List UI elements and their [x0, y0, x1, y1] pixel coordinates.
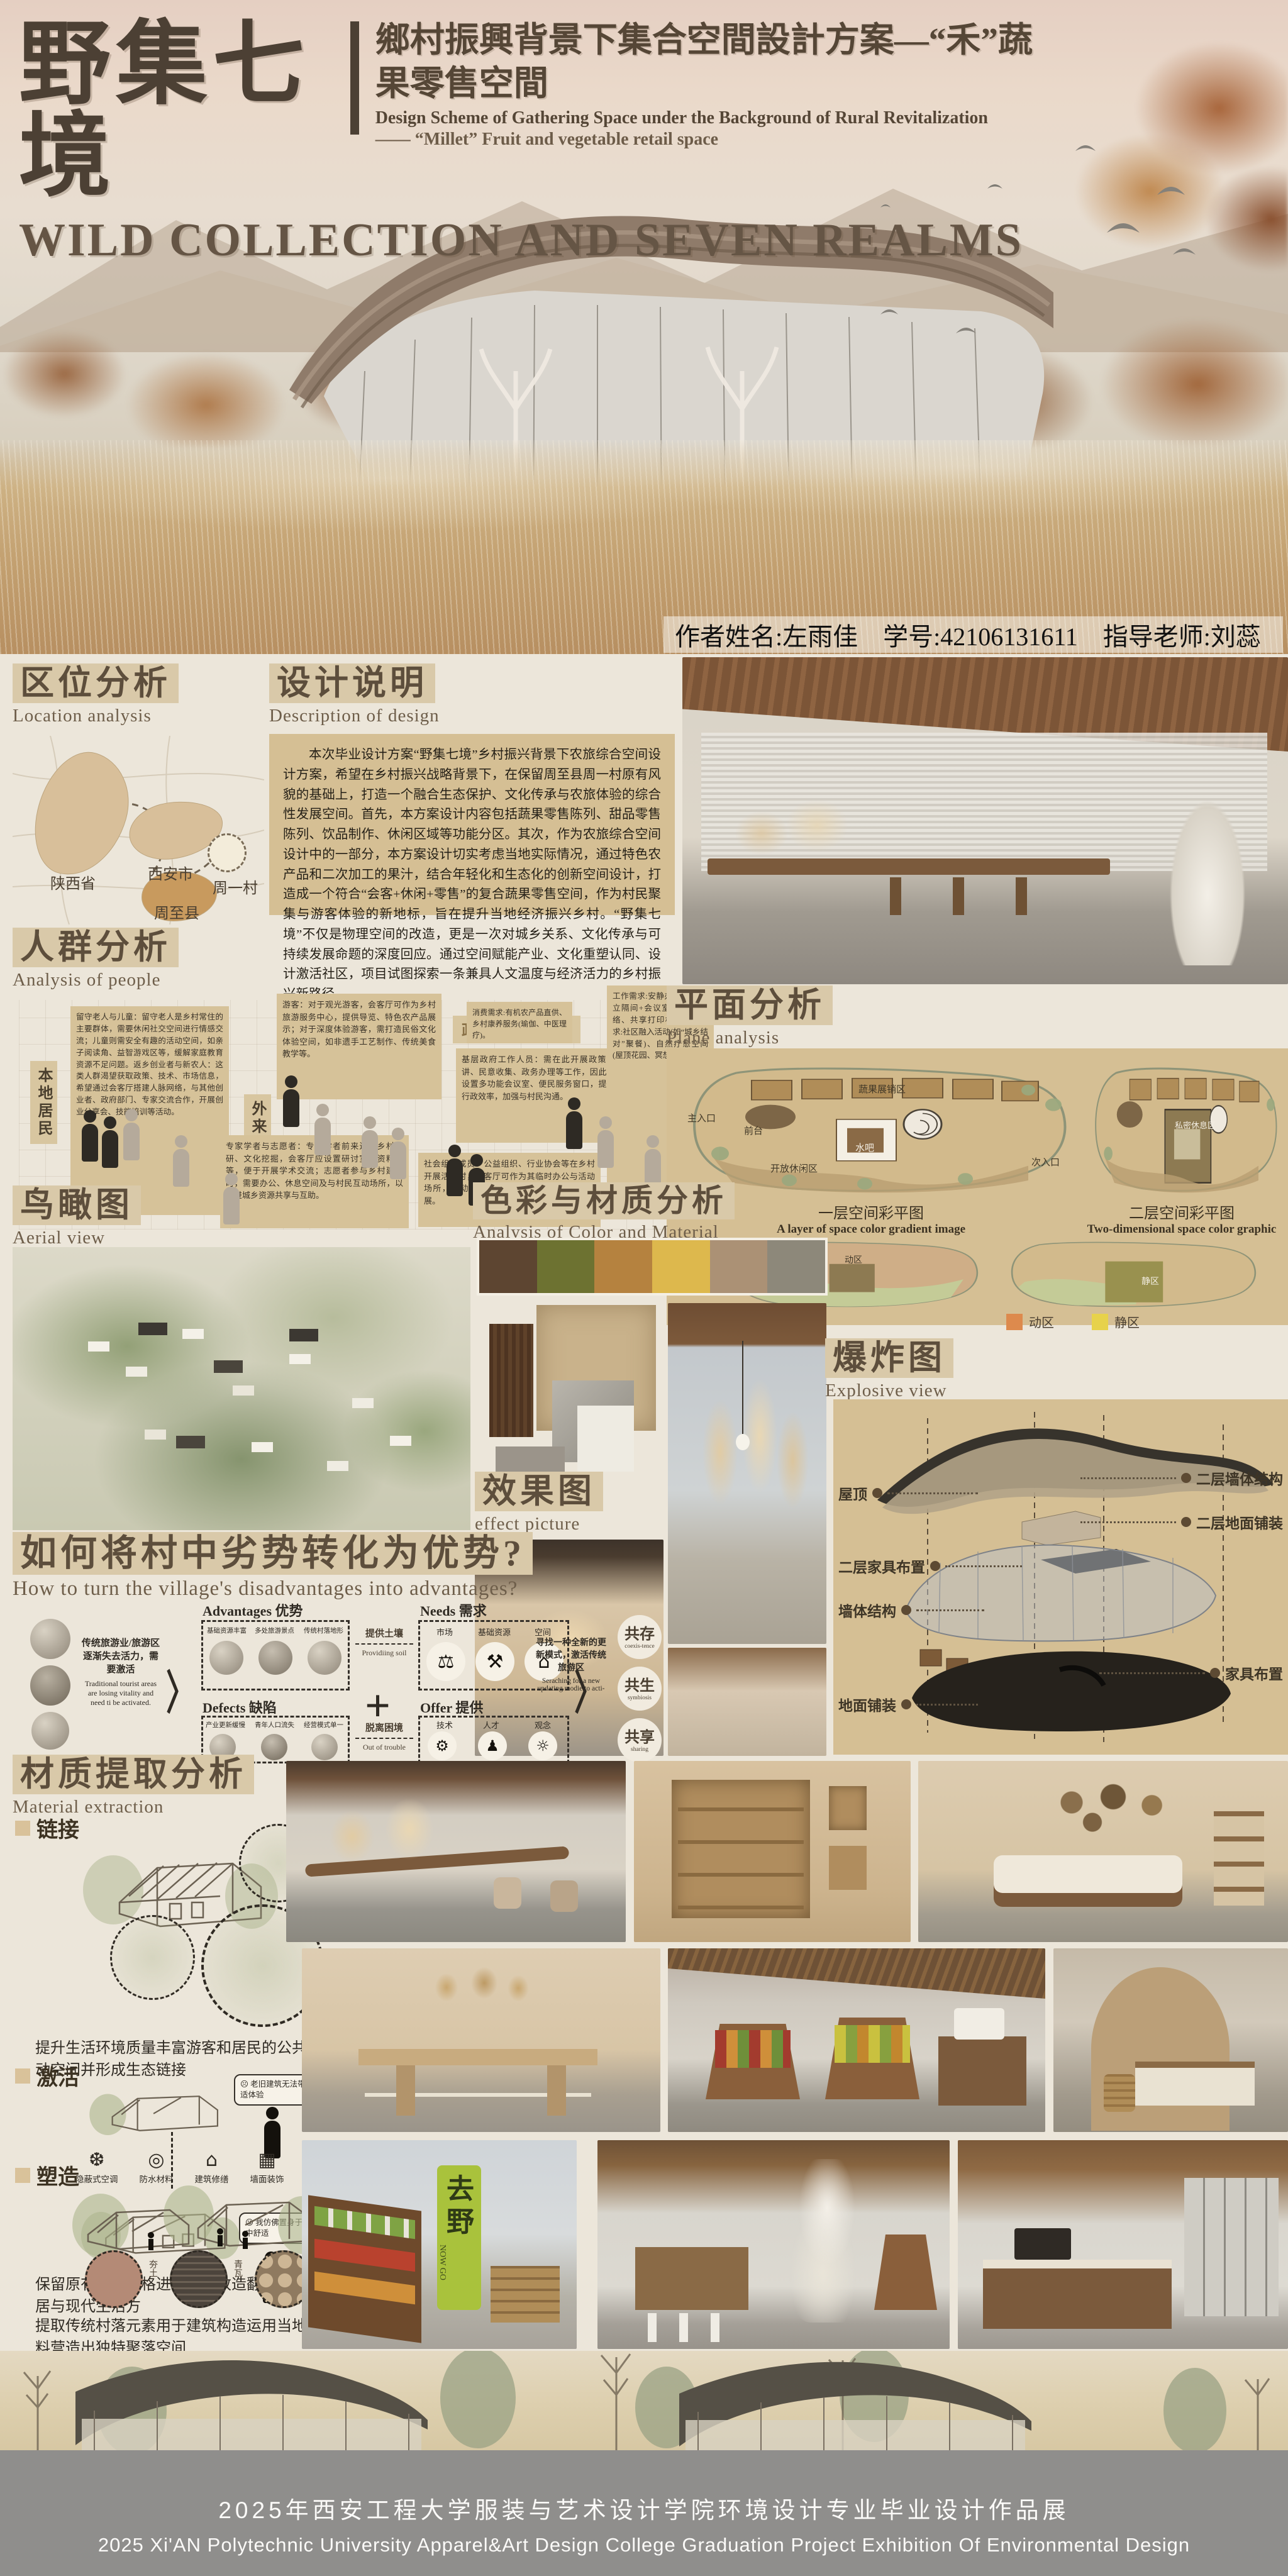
section-explosive: 爆炸图 Explosive view — [825, 1338, 1288, 1758]
pendant-light — [742, 1341, 743, 1435]
shelf-unit — [1214, 1811, 1264, 1906]
explosive-label-f2-furniture: 二层家具布置 — [838, 1555, 1027, 1577]
effect-title: 效果图 — [475, 1472, 603, 1511]
leader-line — [916, 1609, 984, 1611]
pendant-bulb — [736, 1434, 750, 1450]
plane-title: 平面分析 — [667, 985, 833, 1025]
leader-line — [1099, 1672, 1205, 1674]
needs-item-label: 市场 — [436, 1626, 453, 1638]
aerial-image — [13, 1247, 470, 1530]
author-id: 学号:42106131611 — [883, 616, 1078, 653]
arrow-providing-soil: 提供土壤 Providiing soil — [355, 1626, 413, 1658]
defects-label: Defects 缺陷 — [203, 1697, 277, 1717]
material-s1: 链接 — [15, 1813, 79, 1843]
material-s1-label: 链接 — [36, 1813, 79, 1843]
caption2-cn: 二层空间彩平图 — [1075, 1201, 1288, 1223]
person-silhouette — [566, 1097, 582, 1160]
legend-label-active: 动区 — [1029, 1313, 1054, 1331]
aerial-house — [88, 1341, 109, 1352]
author-strip: 作者姓名:左雨佳 学号:42106131611 指导老师:刘蕊 — [663, 616, 1283, 653]
stool-round — [550, 1880, 578, 1912]
adv-item: 基础资源丰富 — [207, 1626, 247, 1635]
palette-swatch — [479, 1240, 537, 1293]
hanging-lamps — [415, 1961, 541, 2005]
green-banner: 去野 NOW GO — [437, 2165, 481, 2310]
explosive-title: 爆炸图 — [825, 1338, 953, 1378]
author-name: 作者姓名:左雨佳 — [675, 616, 858, 653]
label-text: 二层家具布置 — [838, 1555, 925, 1577]
bar-stool — [648, 2313, 657, 2342]
plan1-svg — [676, 1056, 1079, 1197]
chip — [15, 1821, 30, 1836]
table-leg — [547, 2065, 566, 2116]
coffee-machine — [954, 2008, 1004, 2040]
person-silhouette — [82, 1110, 98, 1163]
talent-icon: ♟ — [478, 1731, 507, 1760]
plan4-label-quiet: 静区 — [1141, 1275, 1159, 1287]
log-sofa — [994, 1855, 1182, 1893]
footer-line2: 2025 Xi'AN Polytechnic University Appare… — [98, 2534, 1190, 2557]
label-text: 家具布置 — [1225, 1662, 1283, 1684]
location-map: 陕西省 西安市 周至县 周一村 — [13, 736, 264, 924]
hero-image: 野集七境 鄉村振興背景下集合空間設計方案—“禾”蔬果零售空間 Design Sc… — [0, 0, 1288, 654]
leader-line — [916, 1704, 978, 1706]
plan-floor2: 私密休息区 — [1087, 1056, 1283, 1197]
right-note-en: Seraching for a new updating modie to ac… — [533, 1677, 609, 1692]
market-icon: ⚖ — [426, 1642, 465, 1681]
material-s2: 激活 — [15, 2060, 79, 2091]
plan-label-front-desk: 前台 — [744, 1124, 763, 1137]
leader-line — [1080, 1521, 1176, 1523]
tile-label: 青瓦 — [231, 2260, 243, 2277]
left-note-cn: 传统旅游业/旅游区逐渐失去活力，需要激活 — [80, 1636, 161, 1675]
footer-line1: 2025年西安工程大学服装与艺术设计学院环境设计专业毕业设计作品展 — [218, 2491, 1069, 2525]
bar-counter — [635, 2247, 748, 2310]
result-coexistence: 共存 coexis-tence — [618, 1615, 662, 1659]
dot — [1210, 1668, 1220, 1678]
plan-floor1: 主入口 前台 蔬果展销区 水吧 开放休闲区 次入口 — [676, 1056, 1079, 1197]
link-circle-mid — [110, 1915, 195, 2000]
roof-slats — [668, 1948, 1045, 1999]
photo-vase-shelf — [634, 1761, 911, 1942]
person-silhouette — [264, 2107, 280, 2147]
title-divider — [350, 21, 359, 135]
idea-icon: ☼ — [528, 1731, 557, 1760]
colormat-title: 色彩与材质分析 — [473, 1182, 735, 1219]
map-label-city: 西安市 — [148, 862, 193, 884]
section-shaping: 塑造 夯土 青瓦 木材 提取传统村落元素用于建筑构造运用当地材料营造出独特聚落空… — [13, 2156, 340, 2338]
author-tutor: 指导老师:刘蕊 — [1103, 616, 1261, 653]
advantages-label: Advantages 优势 — [203, 1600, 303, 1620]
explosive-panel: 屋顶 二层家具布置 墙体结构 地面铺装 二层墙体结构 二层地面铺装 家具布置 — [833, 1399, 1288, 1755]
section-design: 设计说明 Description of design 本次毕业设计方案“野集七境… — [269, 663, 675, 915]
stool — [953, 877, 964, 915]
big-table — [358, 2049, 597, 2065]
activate-house-old — [85, 2082, 236, 2138]
elevation-drawing — [0, 2351, 1288, 2472]
person-silhouette — [645, 1135, 661, 1188]
person-silhouette — [283, 1075, 299, 1145]
section-location: 区位分析 Location analysis 陕西省 西安市 — [13, 663, 264, 928]
result-cn: 共享 — [618, 1724, 662, 1746]
palette-swatch — [537, 1240, 595, 1293]
advantages-box: 基础资源丰富 多处旅游景点 传统村落地形 — [201, 1620, 350, 1690]
map-label-province: 陕西省 — [50, 871, 96, 893]
produce-b — [835, 2025, 910, 2063]
person-silhouette — [173, 1135, 189, 1188]
person-silhouette — [102, 1116, 118, 1160]
subtitle-en1: Design Scheme of Gathering Space under t… — [375, 108, 1050, 128]
pampas-decor — [720, 796, 858, 871]
resource-icon: ⚒ — [475, 1642, 514, 1681]
result-cn: 共存 — [618, 1621, 662, 1643]
photo-lounge-pampas — [286, 1761, 626, 1942]
label-text: 二层地面铺装 — [1196, 1511, 1283, 1533]
plan-label-display: 蔬果展销区 — [858, 1082, 906, 1096]
explosive-label-furniture: 家具布置 — [1094, 1662, 1283, 1684]
design-text-panel: 本次毕业设计方案“野集七境”乡村振兴背景下农旅综合空间设计方案，希望在乡村振兴战… — [269, 734, 675, 915]
page-title: 野集七境 — [19, 19, 334, 203]
result-cn: 共生 — [618, 1673, 662, 1695]
fruit-stand-small — [874, 2235, 937, 2310]
plan4-svg — [1000, 1236, 1264, 1310]
palette-swatch — [710, 1240, 768, 1293]
palette-swatch — [652, 1240, 710, 1293]
dot — [930, 1561, 940, 1571]
dot — [1181, 1517, 1191, 1527]
dot — [901, 1605, 911, 1615]
adv-photo — [258, 1641, 292, 1675]
material-s1-caption: 提升生活环境质量丰富游客和居民的公共活动空间并形成生态链接 — [35, 2035, 336, 2079]
plan-label-main-entry: 主入口 — [687, 1111, 716, 1124]
plane-subtitle: Plane analysis — [667, 1028, 1288, 1048]
offer-item-label: 观念 — [535, 1719, 551, 1731]
leader-line — [945, 1565, 1022, 1567]
explosive-label-f2-floor: 二层地面铺装 — [1075, 1511, 1283, 1533]
wall-plates — [1044, 1780, 1182, 1836]
legend-label-quiet: 静区 — [1114, 1313, 1140, 1331]
adv-item: 多处旅游景点 — [255, 1626, 294, 1635]
village-photo-circle — [30, 1665, 70, 1706]
explosive-subtitle: Explosive view — [825, 1380, 1288, 1401]
arrow1-en: Providiing soil — [355, 1648, 413, 1658]
stool-round — [494, 1877, 521, 1909]
map-village-circle — [208, 833, 247, 872]
offer-item-label: 技术 — [436, 1719, 453, 1731]
location-title: 区位分析 — [13, 663, 179, 703]
poster: 野集七境 鄉村振興背景下集合空間設計方案—“禾”蔬果零售空間 Design Sc… — [0, 0, 1288, 2576]
tech-icon: ⚙ — [428, 1731, 457, 1760]
photo-fruit-stands — [668, 1948, 1045, 2132]
people-box-gov: 基层政府工作人员：需在此开展政策宣讲、民意收集、政务办理等工作，因此需设置多功能… — [456, 1048, 621, 1143]
plan-label-water-bar: 水吧 — [855, 1141, 874, 1154]
niche-shelf — [672, 1780, 810, 1918]
banner-en: NOW GO — [437, 2245, 447, 2280]
plan-label-open-lounge: 开放休闲区 — [770, 1162, 818, 1175]
adv-item: 传统村落地形 — [304, 1626, 343, 1635]
sample-rammed-earth — [85, 2250, 143, 2308]
transform-title: 如何将村中劣势转化为优势? — [13, 1532, 533, 1575]
plan3-label-active: 动区 — [845, 1253, 862, 1266]
person-silhouette — [123, 1109, 140, 1162]
def-item: 经营模式单一 — [304, 1720, 343, 1729]
title-en: WILD COLLECTION AND SEVEN REALMS — [19, 214, 1050, 267]
arrow2-cn: 脱离困境 — [355, 1721, 413, 1734]
bottom-elevation-strip — [0, 2351, 1288, 2472]
map-label-county: 周至县 — [154, 901, 199, 923]
arrow-out-of-trouble: 脱离困境 Out of trouble — [355, 1721, 413, 1752]
legend-swatch-quiet — [1092, 1314, 1108, 1330]
niche-small — [829, 1786, 867, 1830]
subtitle-cn: 鄉村振興背景下集合空間設計方案—“禾”蔬果零售空間 — [375, 19, 1050, 106]
palette-swatch — [594, 1240, 652, 1293]
produce-a — [715, 2030, 791, 2068]
explosive-label-wall: 墙体结构 — [838, 1599, 989, 1621]
village-photo-circle — [31, 1712, 69, 1750]
result-en: symbiosis — [618, 1695, 662, 1701]
reception-desk — [1135, 2062, 1255, 2106]
photo-spiral-stair-bar — [597, 2140, 950, 2349]
dot — [872, 1488, 882, 1498]
person-silhouette — [314, 1104, 331, 1157]
explosive-label-roof: 屋顶 — [838, 1482, 983, 1504]
chip — [15, 2068, 30, 2084]
people-box-tourist: 游客：对于观光游客，会客厅可作为乡村旅游服务中心，提供导览、特色农产品展示；对于… — [277, 994, 441, 1099]
offer-box: 技术 人才 观念 ⚙ ♟ ☼ — [418, 1716, 569, 1763]
legend-swatch-active — [1006, 1314, 1023, 1330]
photo-reception-arch — [1053, 1948, 1288, 2132]
label-text: 屋顶 — [838, 1482, 867, 1504]
arrow1-line — [355, 1643, 413, 1645]
offer-item-label: 人才 — [483, 1719, 499, 1731]
material-s2-label: 激活 — [36, 2060, 79, 2091]
leader-line — [1080, 1477, 1176, 1479]
crate-stack — [491, 2266, 560, 2323]
explosive-label-f2-wall: 二层墙体结构 — [1075, 1467, 1283, 1489]
person-silhouette — [362, 1116, 378, 1169]
label-text: 墙体结构 — [838, 1599, 896, 1621]
spiral-column — [1160, 789, 1255, 965]
photo-effect-2 — [668, 1648, 826, 1756]
result-en: coexis-tence — [618, 1643, 662, 1650]
result-sharing: 共享 sharing — [618, 1718, 662, 1762]
design-title: 设计说明 — [269, 663, 435, 703]
counter — [983, 2260, 1172, 2329]
subtitle-en2: —— “Millet” Fruit and vegetable retail s… — [375, 130, 1050, 150]
photo-veg-display-banner: 去野 NOW GO — [302, 2140, 577, 2349]
photo-interior-counter — [682, 657, 1288, 984]
arrow-right-icon: 〉 — [166, 1657, 195, 1723]
leader-line — [887, 1492, 978, 1494]
coffee-machine-counter — [938, 2036, 1026, 2106]
section-transform: 如何将村中劣势转化为优势? How to turn the village's … — [13, 1532, 670, 1766]
explosive-label-floor: 地面铺装 — [838, 1694, 983, 1715]
aerial-subtitle: Aerial view — [13, 1228, 472, 1248]
person-silhouette — [597, 1116, 614, 1169]
needs-item-label: 基础资源 — [478, 1626, 511, 1638]
label-text: 地面铺装 — [838, 1694, 896, 1715]
chip — [15, 2168, 30, 2183]
dot — [901, 1699, 911, 1709]
title-block: 野集七境 鄉村振興背景下集合空間設計方案—“禾”蔬果零售空間 Design Sc… — [19, 19, 1050, 267]
plan-label-private-rest: 私密休息区 — [1175, 1119, 1216, 1131]
stool — [890, 877, 901, 915]
design-subtitle: Description of design — [269, 706, 675, 726]
photo-pampas-window — [668, 1303, 826, 1644]
basket-stack — [1104, 2074, 1135, 2112]
result-en: sharing — [618, 1746, 662, 1753]
aerial-title: 鸟瞰图 — [13, 1185, 141, 1225]
pampas-cluster — [311, 1799, 475, 1874]
adv-photo — [209, 1641, 243, 1675]
veg-shelf — [308, 2195, 421, 2343]
people-title: 人群分析 — [13, 928, 179, 967]
window-mullions — [1184, 2178, 1279, 2316]
section-aerial: 鸟瞰图 Aerial view — [13, 1185, 472, 1530]
offer-label: Offer 提供 — [420, 1697, 483, 1717]
swatch-paper — [577, 1406, 634, 1472]
def-item: 青年人口流失 — [255, 1720, 294, 1729]
color-palette — [477, 1238, 828, 1296]
arrow2-en: Out of trouble — [355, 1743, 413, 1752]
needs-label: Needs 需求 — [420, 1600, 487, 1620]
stool — [1016, 877, 1027, 915]
def-item: 产业更新缓慢 — [206, 1720, 245, 1729]
person-silhouette — [390, 1128, 406, 1180]
plan-caption2: 二层空间彩平图 Two-dimensional space color grap… — [1075, 1201, 1288, 1236]
arrow2-line — [355, 1738, 413, 1739]
aerial-dark-roof — [138, 1323, 167, 1335]
table-leg — [396, 2065, 415, 2116]
espresso-machine — [1014, 2228, 1071, 2260]
location-subtitle: Location analysis — [13, 706, 264, 726]
result-symbiosis: 共生 symbiosis — [618, 1667, 662, 1711]
right-note-cn: 寻找一种全新的更新模式，激活传统旅游区 — [533, 1636, 609, 1674]
spiral-stair — [786, 2159, 868, 2323]
swatch-stone — [496, 1446, 565, 1475]
material-title: 材质提取分析 — [13, 1755, 254, 1794]
photo-sofa-plates — [918, 1761, 1288, 1942]
people-group-local: 本地居民 — [30, 1061, 57, 1144]
footer: 2025年西安工程大学服装与艺术设计学院环境设计专业毕业设计作品展 2025 X… — [0, 2472, 1288, 2576]
plan-label-side-entry: 次入口 — [1031, 1155, 1060, 1169]
sample-tile — [170, 2250, 228, 2308]
material-collage — [477, 1305, 665, 1475]
transform-left-note: 传统旅游业/旅游区逐渐失去活力，需要激活 Traditional tourist… — [80, 1636, 161, 1707]
label-text: 二层墙体结构 — [1196, 1467, 1283, 1489]
caption2-en: Two-dimensional space color graphic — [1075, 1223, 1288, 1236]
palette-swatch — [767, 1240, 825, 1293]
people-box-consume: 消费需求:有机农产品直供、乡村康养服务(瑜伽、中医理疗)。 — [467, 1002, 572, 1043]
left-note-en: Traditional tourist areas are losing vit… — [80, 1679, 161, 1707]
plan-legend: 动区 静区 — [1006, 1313, 1140, 1331]
photo-tea-table — [302, 1948, 660, 2132]
photo-coffee-counter — [958, 2140, 1288, 2349]
adv-photo — [308, 1641, 341, 1675]
arrow1-cn: 提供土壤 — [355, 1626, 413, 1640]
village-photo-circle — [30, 1619, 70, 1659]
sad-face-icon: ☹ — [240, 2079, 248, 2089]
dot — [1181, 1473, 1191, 1483]
transform-subtitle: How to turn the village's disadvantages … — [13, 1577, 670, 1601]
pampas-plumes — [680, 1379, 813, 1542]
plan-zoning2: 静区 — [1000, 1236, 1264, 1310]
rammed-earth-label: 夯土 — [146, 2260, 158, 2277]
banner-cn: 去野 — [437, 2174, 477, 2240]
map-label-village: 周一村 — [213, 875, 258, 897]
transform-right-note: 寻找一种全新的更新模式，激活传统旅游区 Seraching for a new … — [533, 1636, 609, 1692]
